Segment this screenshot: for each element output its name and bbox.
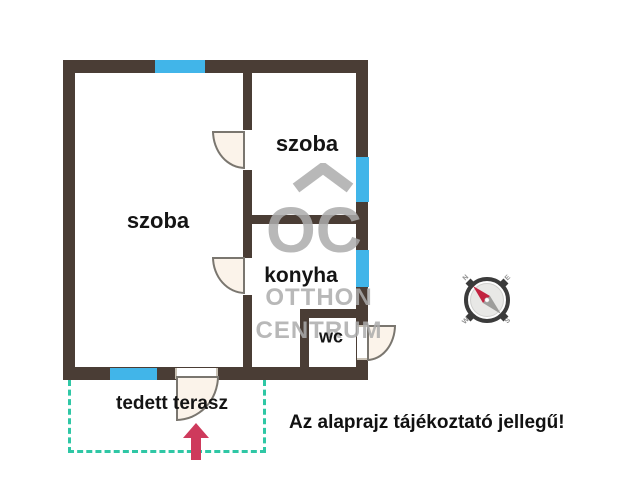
door-szoba-lower [212,257,245,294]
label-wc: wc [319,327,343,348]
window-bottom-wall [110,368,157,380]
wall-interior-vertical-lower [243,295,252,367]
wall-top [63,60,368,73]
watermark-otthon: OTTHON [265,284,372,312]
window-top-wall [155,60,205,73]
label-konyha: konyha [264,264,338,288]
wall-interior-vertical-upper [243,73,252,130]
watermark-oc: OC [266,193,362,267]
label-szoba-right: szoba [276,131,338,157]
label-szoba-left: szoba [127,208,189,234]
compass-needle-icon [464,277,510,323]
wall-left [63,60,75,380]
wall-interior-vertical-middle [243,170,252,258]
terrace-dashed-outline [68,380,266,453]
disclaimer-text: Az alaprajz tájékoztató jellegű! [289,412,565,434]
entrance-arrow-icon [182,422,210,460]
floorplan-canvas: OC OTTHON CENTRUM szoba szoba konyha wc … [0,0,639,500]
label-terasz: tedett terasz [116,393,228,415]
door-szoba-upper [212,131,245,169]
watermark-roof-icon [290,163,356,193]
